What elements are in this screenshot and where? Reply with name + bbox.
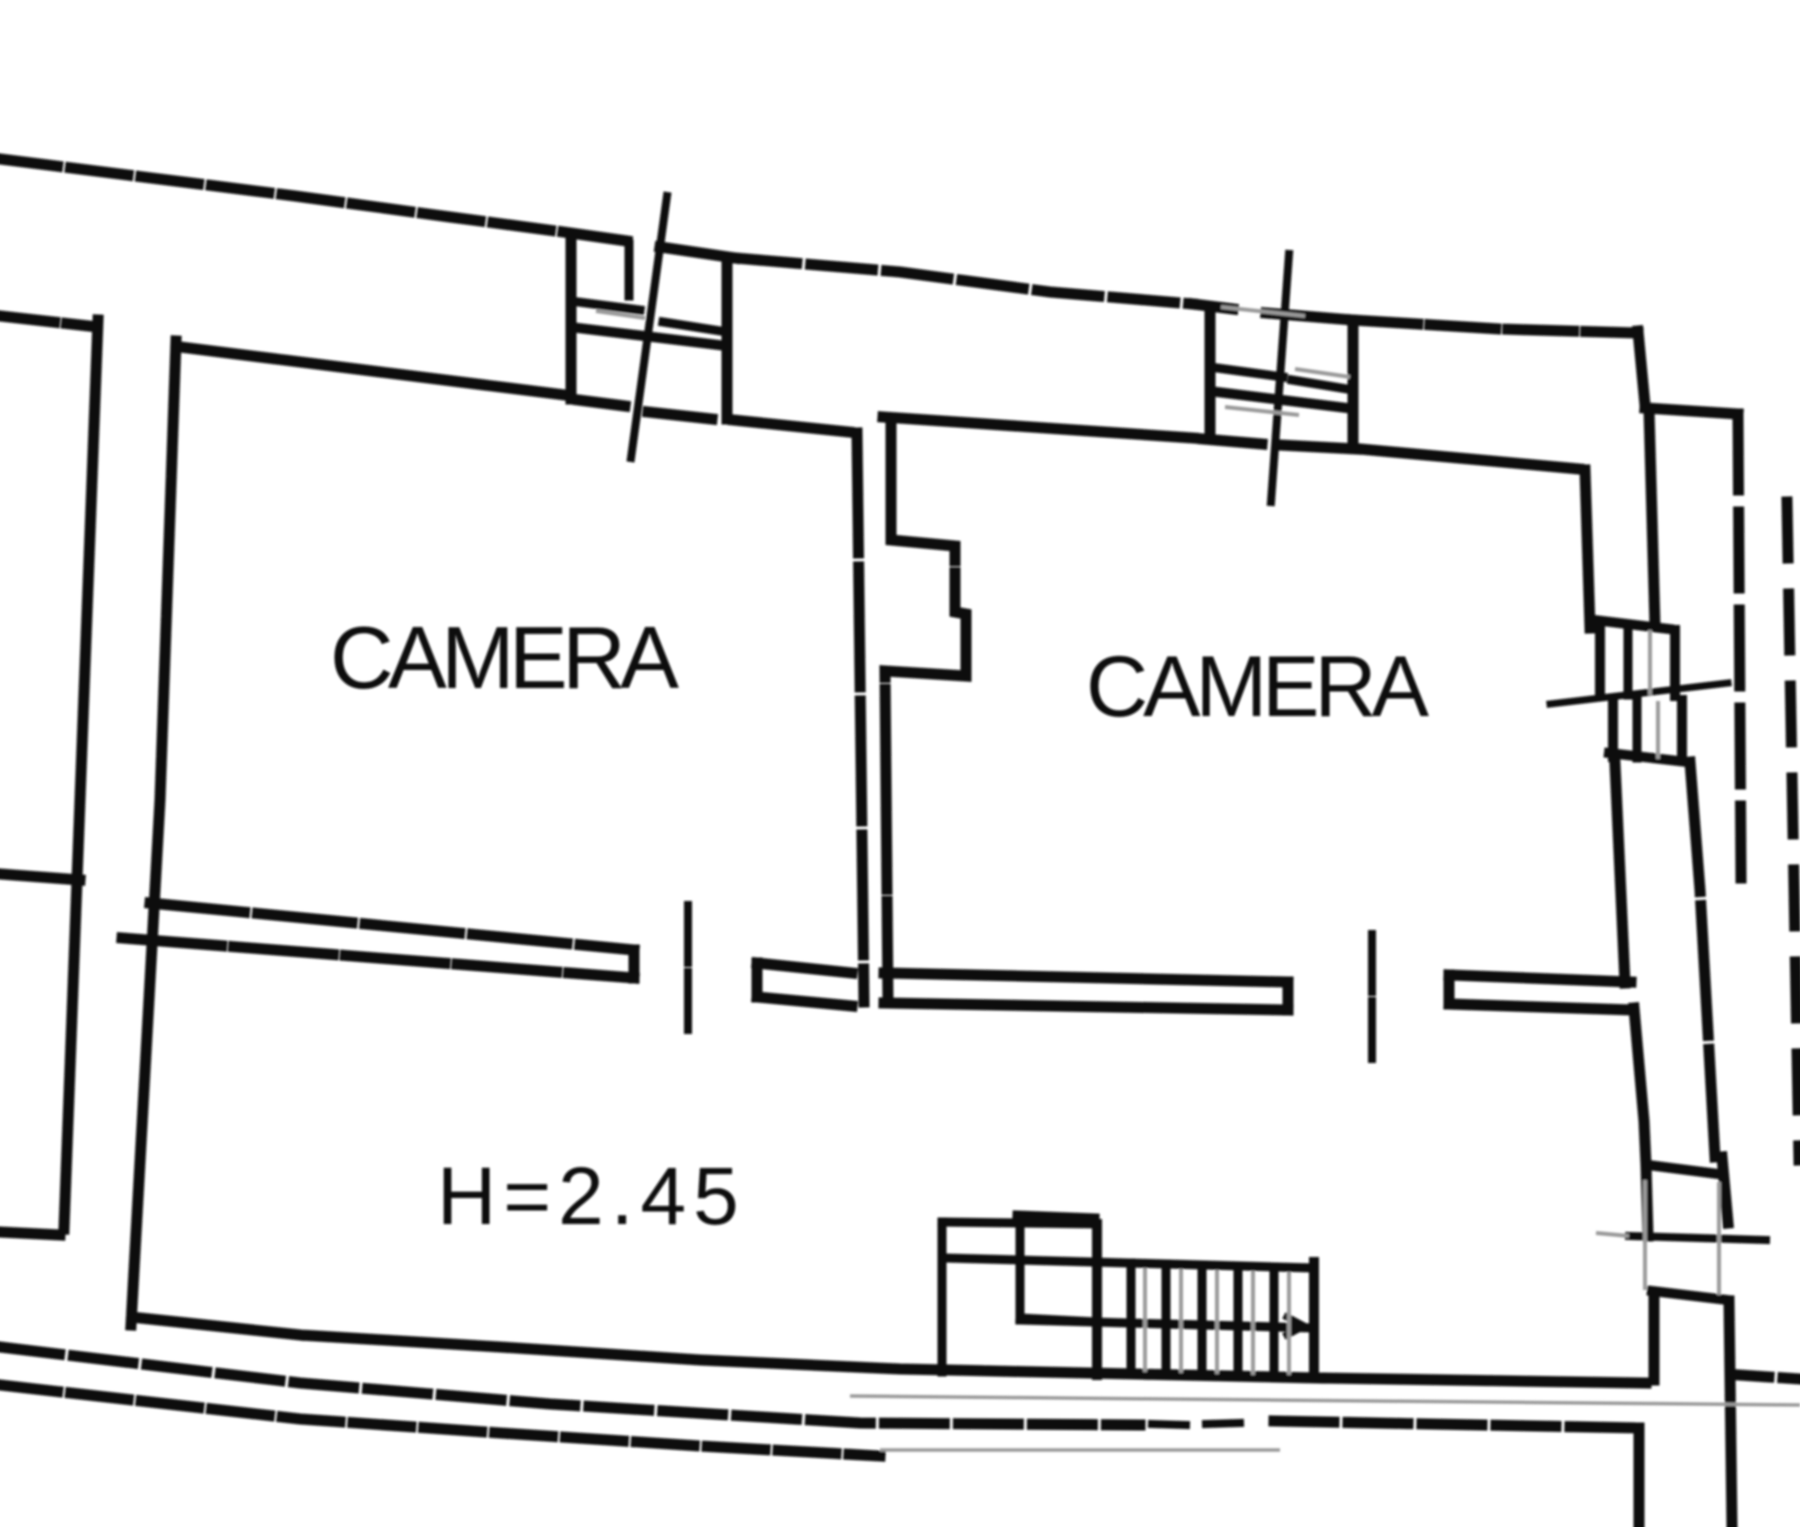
svg-text:CAMERA: CAMERA (1086, 639, 1430, 735)
svg-text:CAMERA: CAMERA (330, 608, 679, 707)
svg-text:H=2.45: H=2.45 (437, 1151, 746, 1242)
